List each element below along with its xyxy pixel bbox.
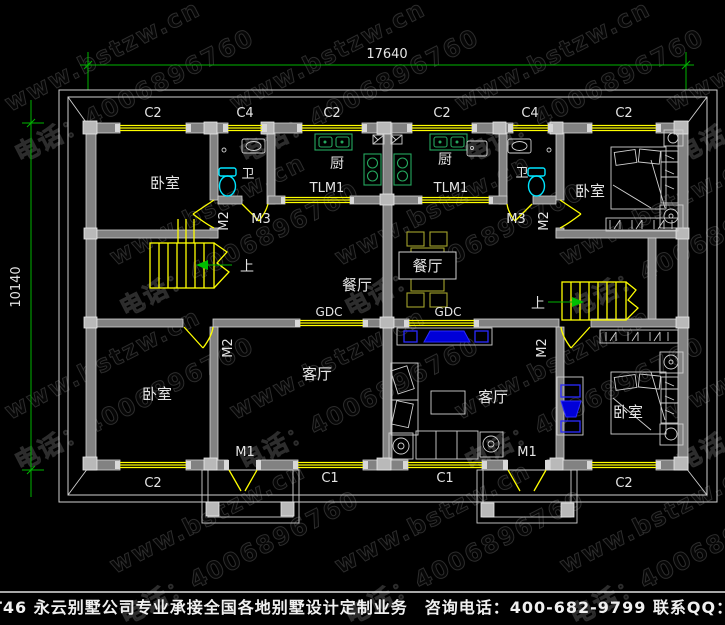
room-label-kitchen-left: 厨	[330, 156, 344, 172]
dimension-height-label: 10140	[9, 266, 24, 307]
door-label-m2: M2	[537, 211, 552, 231]
window-label-c2: C2	[615, 476, 632, 491]
window-label-c2: C2	[144, 476, 161, 491]
tv-icon	[424, 331, 470, 342]
room-label-bedroom-top-left: 卧室	[150, 174, 180, 192]
window-c2-bottom-right	[587, 461, 661, 469]
room-label-living-right: 客厅	[478, 388, 508, 406]
window-label-c1: C1	[436, 471, 453, 486]
window-c1-bottom-left	[293, 461, 368, 469]
room-label-bath-right: 卫	[515, 166, 528, 181]
room-label-bedroom-bottom-right: 卧室	[613, 403, 643, 421]
stair-up-label-right: 上	[531, 296, 545, 312]
door-label-m1: M1	[235, 445, 255, 460]
floor-plan-page: www.bstzw.cn电话：4006896760 www.bstzw.cn电话…	[0, 0, 725, 625]
window-label-c1: C1	[321, 471, 338, 486]
window-label-c2: C2	[433, 106, 450, 121]
window-label-c2: C2	[615, 106, 632, 121]
door-label-m2: M2	[217, 211, 232, 231]
door-label-m3: M3	[251, 212, 271, 227]
partition-label-gdc: GDC	[316, 305, 343, 319]
footer-text: 本图编号：AT46 永云别墅公司专业承接全国各地别墅设计定制业务 咨询电话：40…	[0, 598, 725, 617]
window-label-c2: C2	[323, 106, 340, 121]
dining-label-box-right: 餐厅	[399, 252, 456, 279]
room-label-bedroom-top-right: 卧室	[575, 182, 605, 200]
door-label-m1: M1	[517, 445, 537, 460]
sliding-door-tlm1-right	[418, 197, 493, 204]
window-label-c2: C2	[144, 106, 161, 121]
window-label-c4: C4	[521, 106, 538, 121]
stair-up-label-left: 上	[240, 259, 254, 275]
sliding-door-tlm1-left	[281, 197, 354, 204]
room-label-bedroom-bottom-left: 卧室	[142, 385, 172, 403]
sliding-door-label-tlm1: TLM1	[309, 181, 345, 196]
dimension-width-label: 17640	[366, 47, 407, 62]
window-c2-top-right	[587, 124, 661, 132]
door-label-m2: M2	[221, 338, 236, 358]
window-c4-top-left	[223, 124, 267, 132]
partition-gdc-right	[404, 320, 479, 327]
sliding-door-label-tlm1: TLM1	[433, 181, 469, 196]
room-label-kitchen-right: 厨	[438, 152, 452, 168]
room-label-bath-left: 卫	[241, 167, 254, 182]
window-c4-top-right	[508, 124, 553, 132]
window-c2-top-kitchen-right	[407, 124, 477, 132]
room-label-dining-right: 餐厅	[412, 257, 442, 275]
window-c2-bottom-left	[115, 461, 191, 469]
door-label-m2: M2	[535, 338, 550, 358]
window-c2-top-left	[115, 124, 191, 132]
room-label-dining-left: 餐厅	[342, 276, 372, 294]
window-c1-bottom-right	[403, 461, 487, 469]
room-label-living-left: 客厅	[302, 365, 332, 383]
floor-plan-drawing: www.bstzw.cn电话：4006896760 www.bstzw.cn电话…	[0, 0, 725, 625]
partition-label-gdc: GDC	[435, 305, 462, 319]
window-c2-top-kitchen-left	[297, 124, 367, 132]
door-label-m3: M3	[506, 212, 526, 227]
window-label-c4: C4	[236, 106, 253, 121]
partition-gdc-left	[295, 320, 368, 327]
